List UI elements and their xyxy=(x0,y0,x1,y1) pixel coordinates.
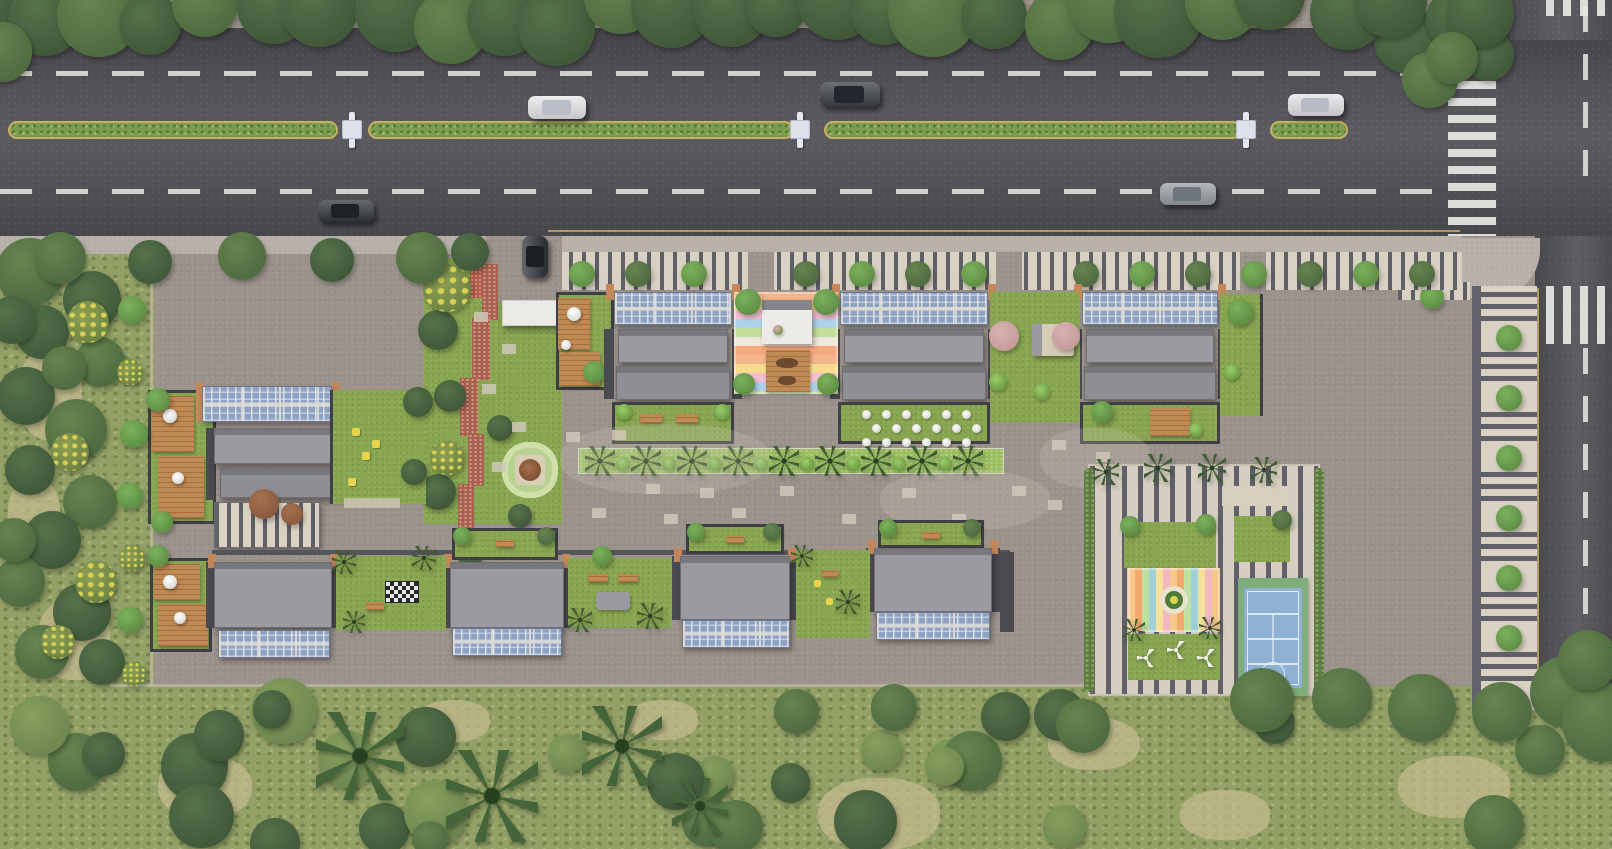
car-glass xyxy=(331,204,359,219)
tree xyxy=(1227,299,1253,325)
umbrella xyxy=(561,340,571,350)
flowering-tree xyxy=(51,433,89,471)
tree xyxy=(1472,682,1532,742)
shrub xyxy=(989,373,1007,391)
tree xyxy=(451,233,489,271)
patio-table xyxy=(902,410,911,419)
plaza-deck xyxy=(766,350,810,392)
deck xyxy=(1150,408,1190,436)
car-glass xyxy=(1173,187,1201,202)
paving-tile xyxy=(1052,440,1066,450)
tree xyxy=(453,527,471,545)
building-roof xyxy=(1084,366,1216,400)
building-roof xyxy=(844,329,984,363)
palm-tree xyxy=(343,611,365,633)
palm-tree xyxy=(446,750,538,842)
tree xyxy=(1426,32,1478,84)
paving-tile xyxy=(1012,486,1026,496)
curb-yellow-line xyxy=(548,230,1460,232)
paving-tile xyxy=(902,488,916,498)
building-side-wing xyxy=(206,562,214,628)
parking-stall-lines xyxy=(1481,352,1537,382)
tree xyxy=(401,459,427,485)
paving-tile xyxy=(732,508,746,518)
zebra-crosswalk xyxy=(1546,0,1612,16)
tree xyxy=(1091,401,1113,423)
paving-tile xyxy=(502,344,516,354)
tree xyxy=(537,527,555,545)
building-end-wing xyxy=(1000,552,1014,632)
tree xyxy=(771,763,811,803)
tree xyxy=(1496,625,1522,651)
tree xyxy=(1196,514,1216,534)
tree xyxy=(981,692,1030,741)
pink-tree xyxy=(1052,322,1080,350)
palm-tree xyxy=(1093,459,1119,485)
solar-panel-roof xyxy=(1082,292,1218,325)
paving-tile xyxy=(474,312,488,322)
fitness-equipment xyxy=(826,598,833,605)
entrance-canopy xyxy=(502,300,560,326)
playground-target-core xyxy=(1170,596,1178,604)
paving-tile xyxy=(566,432,580,442)
tree xyxy=(34,232,86,284)
site-plan-image xyxy=(0,0,1612,849)
paving-tile xyxy=(700,488,714,498)
planted-median xyxy=(1270,121,1348,139)
courtyard-wall xyxy=(330,390,333,504)
tree xyxy=(793,261,819,287)
pink-tree xyxy=(989,321,1019,351)
patio-table xyxy=(892,424,901,433)
tree xyxy=(1558,630,1612,690)
tree xyxy=(1297,261,1323,287)
arcade-entry-gap xyxy=(996,252,1022,290)
flowering-tree xyxy=(75,561,117,603)
paving-pad xyxy=(1222,486,1288,506)
patio-table xyxy=(922,410,931,419)
tree xyxy=(963,519,981,537)
tree xyxy=(583,361,605,383)
tree xyxy=(120,420,148,448)
tree xyxy=(1185,261,1211,287)
bench xyxy=(726,536,744,543)
tree xyxy=(1120,516,1140,536)
deck-furniture xyxy=(778,376,796,385)
car-glass xyxy=(1301,98,1329,113)
dark-car xyxy=(318,200,374,222)
patio-table xyxy=(912,424,921,433)
zebra-crosswalk xyxy=(1546,286,1612,344)
tree xyxy=(1353,261,1379,287)
solar-panel-roof xyxy=(452,628,562,656)
building-roof xyxy=(874,548,992,612)
brick-path xyxy=(458,484,474,530)
tree xyxy=(849,261,875,287)
terracotta-accent xyxy=(606,284,614,300)
palm-tree xyxy=(861,446,891,476)
umbrella xyxy=(163,575,177,589)
tree xyxy=(871,684,917,730)
building-roof xyxy=(616,366,730,400)
chessboard xyxy=(386,582,418,602)
tree xyxy=(1496,385,1522,411)
fitness-equipment xyxy=(362,452,370,460)
tree xyxy=(418,310,458,350)
arcade-entry-gap xyxy=(748,252,774,290)
tree xyxy=(10,696,69,755)
car-glass xyxy=(834,86,864,103)
solar-panel-roof xyxy=(682,620,790,648)
tree xyxy=(253,690,292,729)
palm-tree xyxy=(637,603,663,629)
tree xyxy=(625,261,651,287)
wind-sculpture xyxy=(1137,649,1155,667)
patio-table xyxy=(952,424,961,433)
palm-tree xyxy=(791,545,813,567)
tree xyxy=(1230,668,1294,732)
paving-tile xyxy=(646,484,660,494)
patio-table xyxy=(942,410,951,419)
deck xyxy=(158,456,204,518)
car-glass xyxy=(526,246,544,267)
courtyard-wall xyxy=(1260,294,1263,416)
tree xyxy=(79,639,125,685)
shrub xyxy=(800,457,814,471)
palm-tree xyxy=(316,712,404,800)
garden-courtyard xyxy=(990,292,1080,422)
tree xyxy=(1312,668,1372,728)
parked-car xyxy=(522,236,548,278)
lane-dash-line xyxy=(0,71,1446,76)
court-center-line xyxy=(1272,613,1274,663)
tree xyxy=(925,747,964,786)
deck xyxy=(154,564,200,600)
palm-tree xyxy=(672,778,728,834)
bench xyxy=(822,570,838,577)
bench xyxy=(618,574,638,582)
patio-table-set xyxy=(596,592,630,610)
tree xyxy=(151,511,173,533)
building-side-wing xyxy=(604,329,614,399)
building-roof xyxy=(450,562,564,628)
parking-stall-lines xyxy=(1481,592,1537,622)
tree xyxy=(5,445,55,495)
shrub xyxy=(1034,384,1050,400)
tree xyxy=(310,238,354,282)
tree xyxy=(687,523,705,541)
tree xyxy=(548,734,587,773)
patio-table xyxy=(862,410,871,419)
tree xyxy=(118,296,146,324)
tree xyxy=(735,289,761,315)
bench xyxy=(366,602,384,610)
lane-dash-line-vertical xyxy=(1583,6,1588,176)
bench xyxy=(640,414,662,423)
building-roof xyxy=(1086,329,1214,363)
shrub xyxy=(846,457,860,471)
building-roof xyxy=(618,329,728,363)
tree xyxy=(1496,565,1522,591)
auburn-tree xyxy=(281,503,303,525)
tree xyxy=(1388,674,1456,742)
planted-median xyxy=(824,121,1242,139)
tree xyxy=(733,373,755,395)
shrub xyxy=(1224,364,1240,380)
garden-pavilion-side xyxy=(1032,324,1042,356)
hedge xyxy=(1084,468,1094,692)
shrub xyxy=(938,457,952,471)
tree xyxy=(1241,261,1267,287)
building-roof xyxy=(842,366,986,400)
tree xyxy=(434,380,466,412)
auburn-tree xyxy=(249,489,279,519)
tree xyxy=(487,415,513,441)
plaza-pavilion-roof-edge xyxy=(762,300,812,310)
white-car xyxy=(528,96,586,119)
parking-curb xyxy=(1472,286,1481,710)
deck xyxy=(158,604,208,646)
tree xyxy=(82,732,125,775)
patio-table xyxy=(962,410,971,419)
bench xyxy=(496,540,514,547)
bench xyxy=(588,574,608,582)
tree xyxy=(1496,505,1522,531)
building-roof xyxy=(214,428,336,464)
paving-tile xyxy=(512,422,526,432)
palm-tree xyxy=(332,550,356,574)
tree xyxy=(147,545,169,567)
tree xyxy=(592,546,612,566)
tree xyxy=(169,784,234,849)
paving-patch xyxy=(560,424,770,494)
tree xyxy=(194,710,244,760)
parking-stall-lines xyxy=(1481,292,1537,322)
tree xyxy=(763,523,781,541)
shrub xyxy=(714,404,730,420)
paving-tile xyxy=(482,384,496,394)
parking-stall-lines xyxy=(1481,412,1537,442)
building-roof xyxy=(214,562,332,628)
solar-panel-roof xyxy=(840,292,988,325)
tree xyxy=(1464,795,1524,849)
flowering-tree xyxy=(119,545,145,571)
white-car xyxy=(1288,94,1344,116)
tree xyxy=(117,483,143,509)
building-side-wing xyxy=(992,548,1000,612)
paving-tile xyxy=(1048,500,1062,510)
patio-table xyxy=(882,410,891,419)
tree xyxy=(1129,261,1155,287)
shrub xyxy=(616,404,632,420)
fountain xyxy=(519,459,541,481)
parking-stall-lines xyxy=(1481,532,1537,562)
tree xyxy=(961,261,987,287)
umbrella xyxy=(163,409,177,423)
tree xyxy=(396,232,448,284)
palm-tree xyxy=(1198,454,1226,482)
deck-furniture xyxy=(776,358,798,368)
umbrella xyxy=(567,307,581,321)
brick-path xyxy=(468,434,484,486)
patio-table xyxy=(972,424,981,433)
fitness-equipment xyxy=(348,478,356,486)
paving-tile xyxy=(592,508,606,518)
tree xyxy=(774,689,819,734)
paving-tile xyxy=(664,514,678,524)
palm-tree xyxy=(1251,457,1277,483)
tree xyxy=(905,261,931,287)
tree xyxy=(128,240,172,284)
wind-sculpture xyxy=(1167,641,1185,659)
flowering-tree xyxy=(122,662,146,686)
tree xyxy=(1056,699,1110,753)
tree xyxy=(359,803,410,849)
wind-sculpture xyxy=(1197,649,1215,667)
palm-tree xyxy=(815,446,845,476)
planted-median xyxy=(368,121,794,139)
building-roof xyxy=(220,468,344,498)
hedge xyxy=(1314,468,1324,692)
patio-table xyxy=(942,438,951,447)
tree xyxy=(146,388,170,412)
fitness-equipment xyxy=(352,428,360,436)
patio-table xyxy=(932,424,941,433)
building-roof xyxy=(680,556,790,620)
dark-suv xyxy=(820,82,880,107)
tree xyxy=(1409,261,1435,287)
tree xyxy=(1272,510,1292,530)
tree xyxy=(508,504,532,528)
paving-pad xyxy=(344,498,400,508)
tree xyxy=(817,373,839,395)
solar-panel-roof xyxy=(218,630,330,658)
street-light-head xyxy=(1236,120,1256,139)
flowering-tree xyxy=(117,359,143,385)
palm-tree xyxy=(568,608,592,632)
brick-path xyxy=(472,318,490,380)
tree xyxy=(1043,805,1086,848)
tree xyxy=(681,261,707,287)
palm-tree xyxy=(1199,617,1221,639)
tree xyxy=(879,519,897,537)
building-side-wing xyxy=(206,428,214,500)
tree xyxy=(1496,325,1522,351)
tree xyxy=(218,232,266,280)
palm-tree xyxy=(1123,619,1145,641)
planted-median xyxy=(8,121,338,139)
palm-tree xyxy=(412,546,436,570)
flowering-tree xyxy=(41,625,75,659)
shrub xyxy=(1189,423,1203,437)
tree xyxy=(813,289,839,315)
solar-panel-roof xyxy=(614,292,732,325)
bench xyxy=(676,414,698,423)
building-side-wing xyxy=(672,556,680,620)
paving-tile xyxy=(780,486,794,496)
tree xyxy=(403,387,433,417)
shrub xyxy=(892,457,906,471)
tree xyxy=(569,261,595,287)
car-glass xyxy=(542,100,571,116)
street-light-head xyxy=(790,120,810,139)
fitness-equipment xyxy=(814,580,821,587)
tree xyxy=(1496,445,1522,471)
bench xyxy=(922,532,940,539)
paving-tile xyxy=(612,430,626,440)
shrub xyxy=(773,325,783,335)
sand-patch xyxy=(1180,790,1270,840)
solar-panel-roof xyxy=(202,386,332,422)
palm-tree xyxy=(1144,454,1172,482)
curb-yellow-line-vertical xyxy=(1537,288,1539,692)
parking-stall-lines xyxy=(1481,652,1537,682)
paving-tile xyxy=(842,514,856,524)
tree xyxy=(42,346,86,390)
parking-stall-lines xyxy=(1481,472,1537,502)
umbrella xyxy=(174,612,186,624)
patio-table xyxy=(872,424,881,433)
palm-tree xyxy=(836,590,860,614)
lane-dash-line xyxy=(0,189,1446,194)
flowering-tree xyxy=(67,301,109,343)
palm-tree xyxy=(582,706,662,786)
fitness-equipment xyxy=(372,440,380,448)
gray-car xyxy=(1160,183,1216,205)
tree xyxy=(834,790,897,849)
street-light-head xyxy=(342,120,362,139)
paving-tile xyxy=(492,462,506,472)
umbrella xyxy=(172,472,184,484)
tree xyxy=(117,607,143,633)
flowering-tree xyxy=(430,441,464,475)
solar-panel-roof xyxy=(876,612,990,640)
palm-tree xyxy=(769,446,799,476)
